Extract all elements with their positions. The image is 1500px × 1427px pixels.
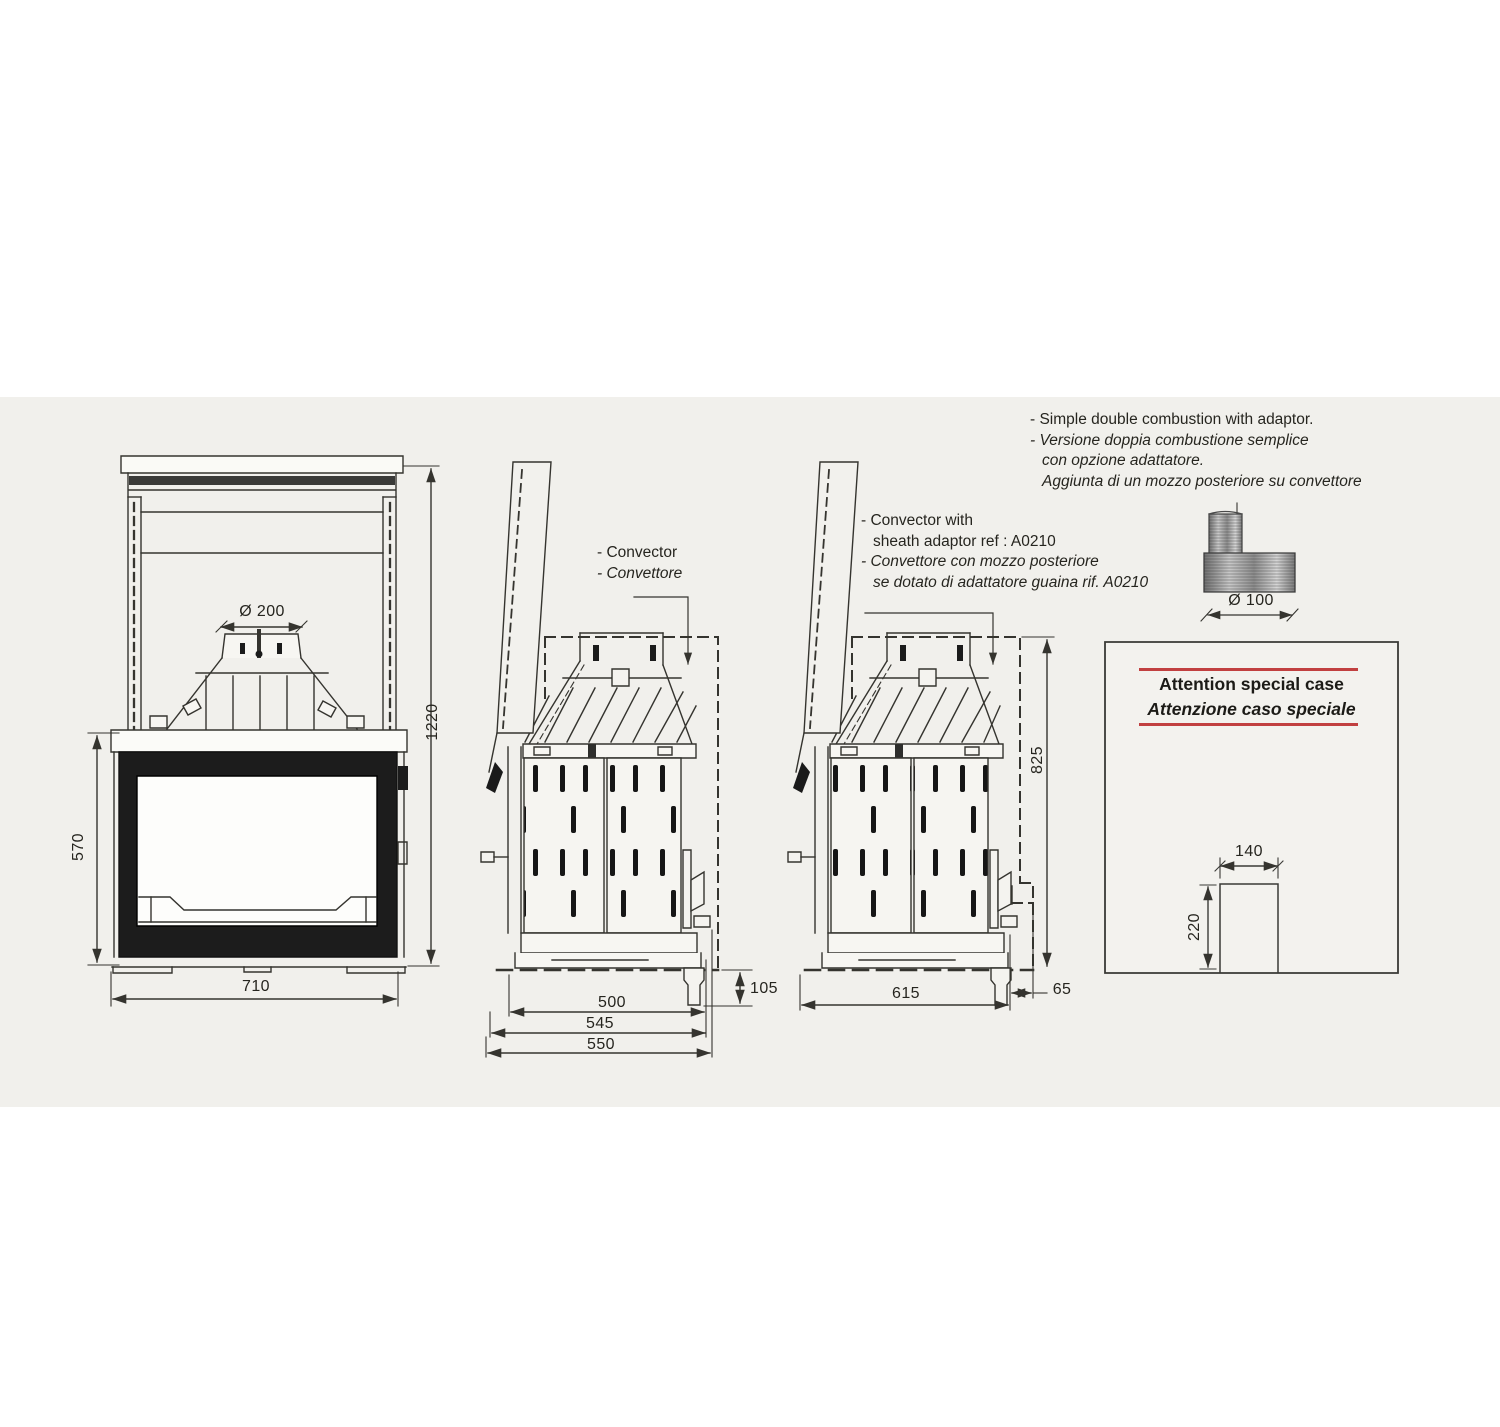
dim-hub-offset-label: 65 (1053, 981, 1072, 999)
dim-width-label: 710 (242, 978, 270, 996)
note-line: con opzione adattatore. (1030, 451, 1362, 472)
dim-depth-mid-label: 545 (586, 1015, 614, 1033)
dim-rear-drop-label: 105 (750, 980, 778, 998)
note-simple-double-combustion: - Simple double combustion with adaptor.… (1030, 410, 1362, 492)
note-line: sheath adaptor ref : A0210 (861, 532, 1148, 553)
note-line: - Versione doppia combustione semplice (1030, 431, 1362, 452)
dim-niche-height-label: 220 (1186, 913, 1204, 941)
adaptor-dimension-line (1201, 609, 1298, 621)
attention-title-it: Attenzione caso speciale (1105, 699, 1398, 720)
dim-depth-615-label: 615 (892, 985, 920, 1003)
note-convector-with-adaptor: - Convector with sheath adaptor ref : A0… (861, 511, 1148, 593)
note-convector: - Convector - Convettore (597, 543, 682, 584)
technical-drawing-page: - Simple double combustion with adaptor.… (0, 0, 1500, 1427)
dim-firebox-height-label: 570 (70, 833, 88, 861)
dim-depth-total-label: 550 (587, 1036, 615, 1054)
dim-flue-diameter-label: Ø 200 (239, 603, 285, 621)
note-line: - Convettore con mozzo posteriore (861, 552, 1148, 573)
front-view-drawing (88, 456, 439, 1006)
note-line: - Convector (597, 543, 682, 564)
dim-adaptor-diameter-label: Ø 100 (1228, 592, 1274, 610)
note-line: - Simple double combustion with adaptor. (1030, 410, 1362, 431)
attention-title-en: Attention special case (1105, 674, 1398, 695)
dim-niche-width-label: 140 (1235, 843, 1263, 861)
note-line: se dotato di adattatore guaina rif. A021… (861, 573, 1148, 594)
dim-height-825-label: 825 (1029, 746, 1047, 774)
note-line: Aggiunta di un mozzo posteriore su conve… (1030, 472, 1362, 493)
attention-red-rule-bottom (1139, 723, 1358, 726)
note-line: - Convettore (597, 564, 682, 585)
attention-red-rule-top (1139, 668, 1358, 671)
dim-total-height-label: 1220 (424, 703, 442, 740)
dim-depth-body-label: 500 (598, 994, 626, 1012)
note-line: - Convector with (861, 511, 1148, 532)
